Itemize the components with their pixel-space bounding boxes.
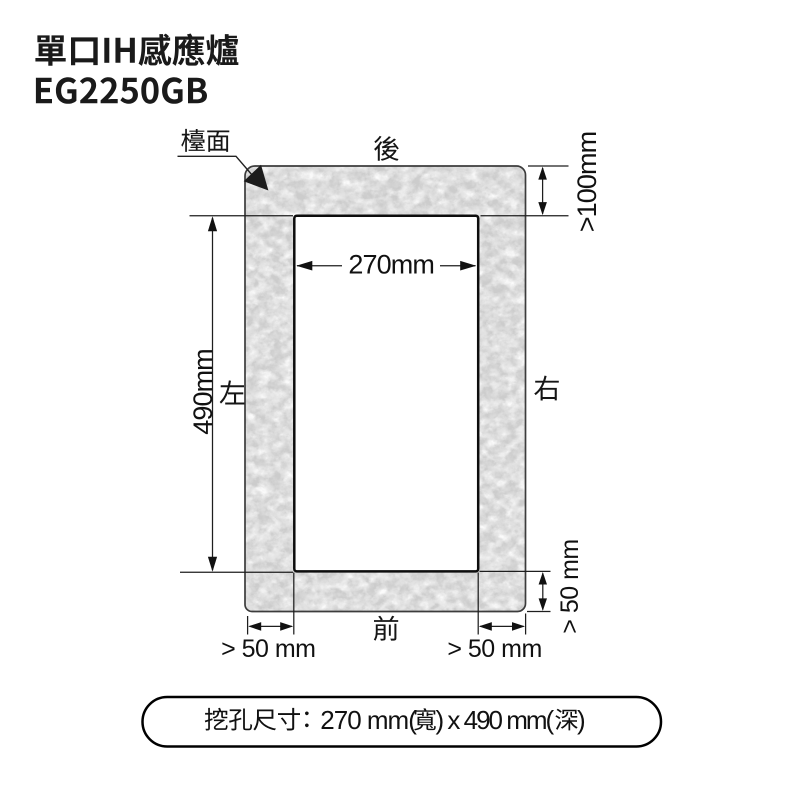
svg-text:270mm: 270mm (348, 250, 434, 280)
svg-text:> 50 mm: > 50 mm (556, 539, 584, 633)
svg-text:): ) (577, 705, 586, 735)
svg-text:>100mm: >100mm (572, 132, 602, 232)
svg-text:270 mm(: 270 mm( (320, 705, 417, 735)
svg-text:490mm: 490mm (188, 349, 218, 435)
svg-text:> 50 mm: > 50 mm (221, 635, 315, 663)
svg-text:> 50 mm: > 50 mm (447, 635, 541, 663)
svg-text:) x 490 mm(: ) x 490 mm( (436, 705, 555, 735)
